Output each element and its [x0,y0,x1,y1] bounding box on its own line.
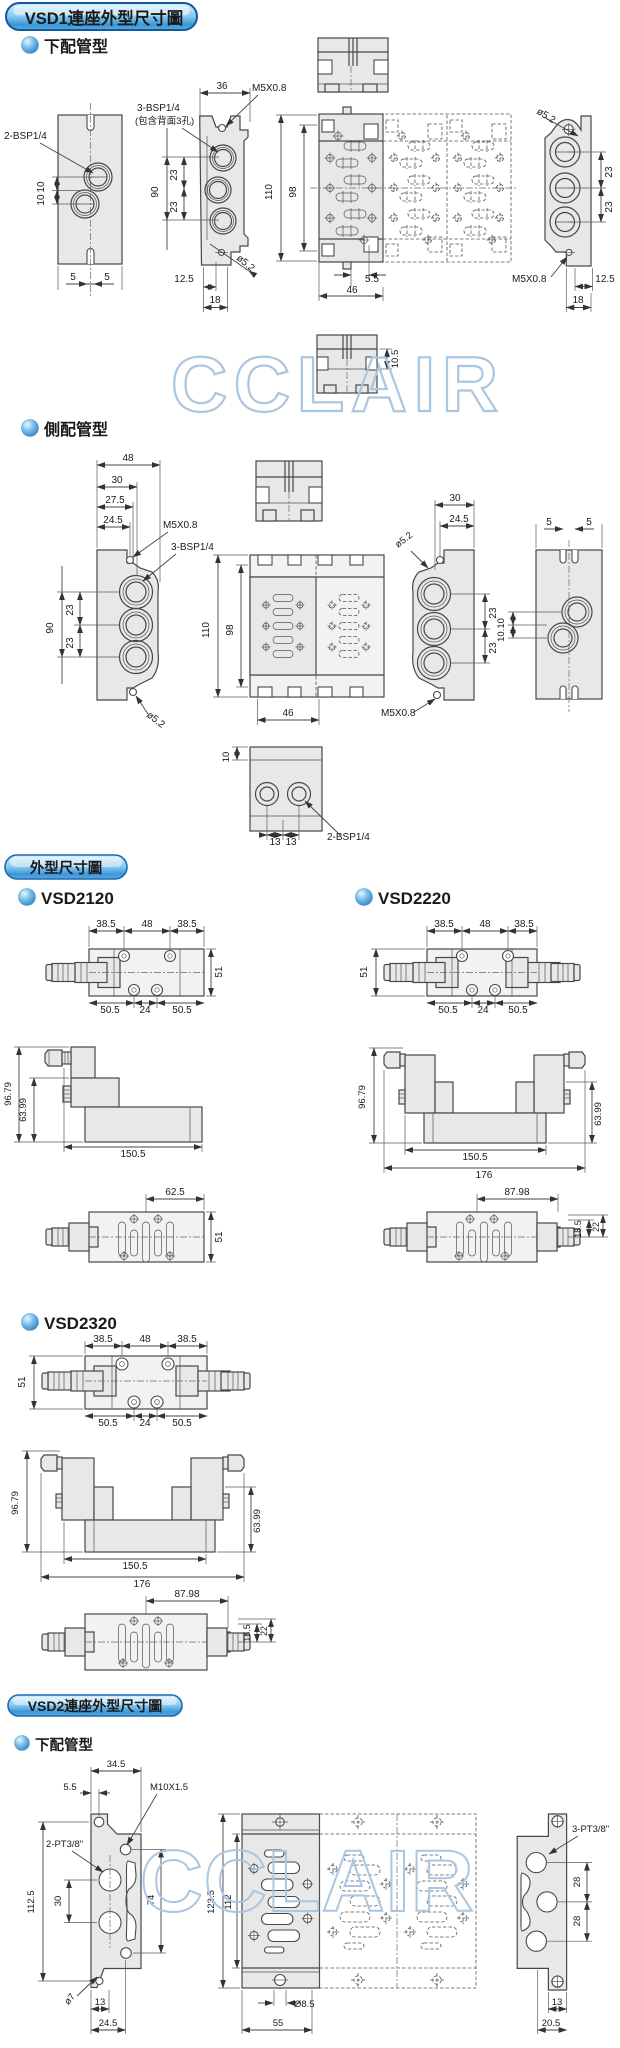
svg-text:150.5: 150.5 [122,1561,147,1572]
svg-text:38.5: 38.5 [434,919,454,930]
svg-text:23: 23 [65,604,76,616]
svg-text:5: 5 [546,517,552,528]
svg-text:55: 55 [273,2018,284,2029]
svg-text:51: 51 [359,966,370,978]
svg-text:VSD2120: VSD2120 [41,889,114,908]
svg-text:38.5: 38.5 [177,1334,197,1345]
svg-text:23: 23 [169,201,180,213]
svg-text:23: 23 [169,169,180,181]
svg-text:110: 110 [264,184,275,200]
svg-text:46: 46 [282,708,294,719]
svg-text:110: 110 [201,622,212,638]
svg-text:24: 24 [139,1418,151,1429]
svg-text:50.5: 50.5 [172,1418,192,1429]
svg-text:23: 23 [488,642,499,654]
svg-text:10: 10 [221,752,232,763]
svg-text:24: 24 [477,1005,489,1016]
svg-text:18.5: 18.5 [242,1624,252,1642]
svg-text:VSD2320: VSD2320 [44,1314,117,1333]
svg-text:22: 22 [591,1222,601,1232]
svg-text:10: 10 [36,194,47,206]
svg-text:23: 23 [488,607,499,619]
svg-text:50.5: 50.5 [508,1005,528,1016]
svg-text:22: 22 [259,1626,269,1636]
svg-text:63.99: 63.99 [252,1509,263,1533]
svg-text:5: 5 [586,517,592,528]
svg-text:23: 23 [604,201,615,213]
svg-text:VSD2220: VSD2220 [378,889,451,908]
svg-text:48: 48 [479,919,491,930]
svg-text:CCLAIR: CCLAIR [171,340,505,428]
svg-text:63.99: 63.99 [18,1098,29,1122]
svg-text:10.10: 10.10 [496,618,507,642]
svg-text:150.5: 150.5 [120,1149,145,1160]
svg-text:12.5: 12.5 [174,274,194,285]
svg-text:VSD2連座外型尺寸圖: VSD2連座外型尺寸圖 [28,1698,163,1714]
svg-text:M10X1.5: M10X1.5 [150,1782,188,1793]
svg-text:5: 5 [70,272,76,283]
svg-text:13: 13 [552,1997,563,2008]
svg-text:ø5.2: ø5.2 [234,253,257,275]
svg-text:176: 176 [476,1170,493,1181]
svg-text:63.99: 63.99 [593,1102,604,1126]
svg-text:2-PT3/8": 2-PT3/8" [46,1839,83,1850]
svg-text:28: 28 [572,1877,583,1888]
svg-text:150.5: 150.5 [462,1152,487,1163]
svg-text:30: 30 [111,475,123,486]
svg-text:51: 51 [17,1376,28,1388]
svg-text:M5X0.8: M5X0.8 [163,520,198,531]
svg-text:20.5: 20.5 [542,2018,561,2029]
svg-text:38.5: 38.5 [177,919,197,930]
svg-text:48: 48 [139,1334,151,1345]
svg-text:38.5: 38.5 [514,919,534,930]
svg-text:Ø8.5: Ø8.5 [294,1999,315,2010]
svg-text:98: 98 [288,186,299,198]
svg-text:38.5: 38.5 [96,919,116,930]
svg-text:96.79: 96.79 [10,1491,21,1515]
svg-text:5: 5 [104,272,110,283]
svg-text:28: 28 [572,1916,583,1927]
svg-text:51: 51 [214,1231,225,1243]
svg-text:27.5: 27.5 [105,495,125,506]
svg-text:96.79: 96.79 [3,1082,14,1106]
svg-text:30: 30 [53,1896,64,1907]
svg-text:48: 48 [122,453,134,464]
svg-text:48: 48 [141,919,153,930]
svg-text:ø5.2: ø5.2 [393,530,415,550]
svg-text:62.5: 62.5 [165,1187,185,1198]
svg-text:13: 13 [269,837,281,848]
svg-text:50.5: 50.5 [172,1005,192,1016]
svg-text:96.79: 96.79 [357,1085,368,1109]
svg-text:90: 90 [150,186,161,198]
svg-text:23: 23 [65,637,76,649]
svg-text:18: 18 [209,295,221,306]
svg-text:(包含背面3孔): (包含背面3孔) [135,115,194,127]
svg-text:176: 176 [134,1579,151,1590]
svg-text:50.5: 50.5 [100,1005,120,1016]
svg-text:30: 30 [449,493,461,504]
svg-text:側配管型: 側配管型 [43,420,108,439]
svg-text:87.98: 87.98 [174,1589,199,1600]
svg-text:M5X0.8: M5X0.8 [381,708,416,719]
svg-text:24.5: 24.5 [449,514,469,525]
svg-text:VSD1連座外型尺寸圖: VSD1連座外型尺寸圖 [25,8,184,28]
svg-text:46: 46 [346,285,358,296]
svg-text:2-BSP1/4: 2-BSP1/4 [4,131,47,142]
svg-text:外型尺寸圖: 外型尺寸圖 [30,859,103,877]
svg-text:M5X0.8: M5X0.8 [252,83,287,94]
svg-text:23: 23 [604,166,615,178]
svg-text:50.5: 50.5 [438,1005,458,1016]
svg-text:36: 36 [216,81,228,92]
svg-text:13: 13 [285,837,297,848]
svg-text:18.5: 18.5 [573,1220,583,1238]
svg-text:10: 10 [36,181,47,193]
svg-text:98: 98 [225,624,236,636]
svg-text:34.5: 34.5 [107,1759,126,1770]
svg-text:5.5: 5.5 [63,1782,76,1793]
svg-text:下配管型: 下配管型 [35,1736,93,1754]
svg-text:ø5.2: ø5.2 [534,106,557,126]
svg-text:51: 51 [214,966,225,978]
svg-text:38.5: 38.5 [93,1334,113,1345]
svg-text:ø7: ø7 [62,1992,78,2008]
svg-text:90: 90 [45,622,56,634]
svg-text:5.5: 5.5 [365,274,379,285]
svg-text:下配管型: 下配管型 [44,37,108,56]
svg-text:12.5: 12.5 [595,274,615,285]
svg-text:112.5: 112.5 [26,1890,37,1913]
svg-text:24.5: 24.5 [103,515,123,526]
svg-text:CCLAIR: CCLAIR [140,1833,475,1930]
svg-text:3-PT3/8": 3-PT3/8" [572,1824,609,1835]
svg-text:3-BSP1/4: 3-BSP1/4 [137,103,180,114]
svg-text:87.98: 87.98 [504,1187,529,1198]
svg-text:50.5: 50.5 [98,1418,118,1429]
svg-text:24: 24 [139,1005,151,1016]
svg-text:18: 18 [572,295,584,306]
svg-text:2-BSP1/4: 2-BSP1/4 [327,832,370,843]
svg-text:13: 13 [95,1997,106,2008]
svg-text:M5X0.8: M5X0.8 [512,274,547,285]
svg-text:3-BSP1/4: 3-BSP1/4 [171,542,214,553]
svg-text:24.5: 24.5 [99,2018,118,2029]
